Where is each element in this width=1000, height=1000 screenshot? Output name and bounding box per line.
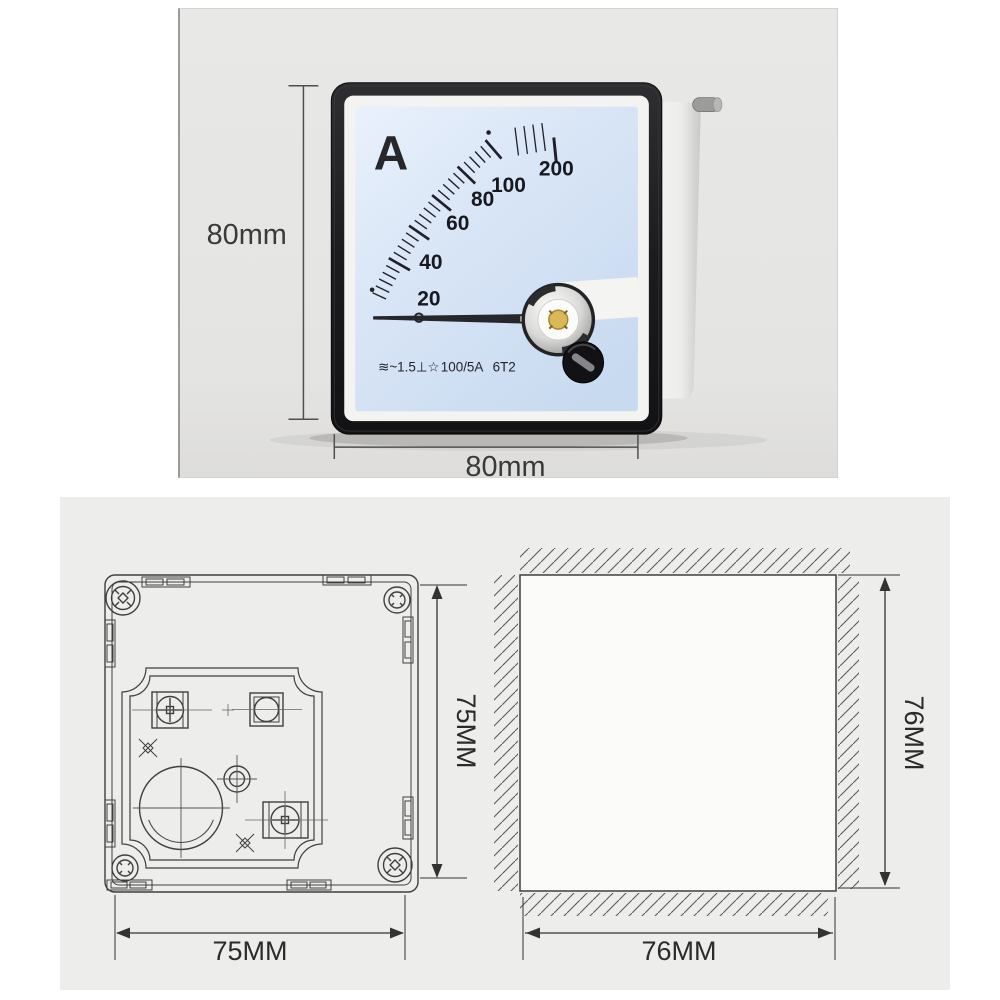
- panel-cutout-drawing: [494, 548, 859, 916]
- cutout-opening: [520, 575, 836, 891]
- photo-height-label: 80mm: [207, 219, 287, 251]
- corner-screw-tl: [106, 581, 140, 615]
- dimension-drawings-panel: 75MM 75MM: [60, 497, 950, 990]
- rear-inner-case: [112, 582, 411, 885]
- cutout-width-label: 76MM: [641, 936, 716, 966]
- scale-label-100: 100: [491, 174, 526, 197]
- zero-adjust-knob: [563, 342, 604, 383]
- datum-mark-1: [139, 739, 157, 757]
- hatch-left: [494, 575, 518, 891]
- photo-height-dimension: [289, 86, 319, 419]
- datum-mark-2: [236, 834, 254, 852]
- drawings: 75MM 75MM: [60, 497, 950, 990]
- movement-circle: [133, 758, 230, 858]
- corner-screw-tr: [384, 587, 410, 613]
- scale-label-200: 200: [539, 157, 574, 180]
- hatch-bottom: [520, 893, 828, 916]
- hatch-top: [520, 548, 850, 573]
- meter-unit-label: A: [374, 127, 409, 180]
- terminal-block-3: [245, 791, 328, 849]
- scale-start-dot: [370, 287, 375, 292]
- terminal-block-1: [132, 692, 234, 728]
- dial-marking-ratio: 100/5A: [441, 359, 484, 374]
- corner-screw-br: [378, 848, 412, 882]
- cutout-height-label: 76MM: [899, 695, 929, 770]
- rear-view-drawing: [105, 575, 418, 892]
- scale-label-40: 40: [419, 251, 442, 274]
- scale-label-20: 20: [417, 288, 440, 311]
- scale-end-dot: [486, 130, 491, 135]
- adjuster-target: [217, 755, 257, 803]
- terminal-screw: [693, 98, 722, 112]
- rear-width-label: 75MM: [212, 936, 287, 966]
- hatch-right: [838, 577, 859, 889]
- dial-marking-model: 6T2: [493, 359, 516, 374]
- scale-label-60: 60: [446, 212, 469, 235]
- dial-marking: ≋~1.5⊥☆ 100/5A 6T2: [378, 359, 516, 374]
- page: A 20 40 60 80 100 200 ≋~1.5⊥☆: [0, 0, 1000, 1000]
- corner-screw-bl: [112, 855, 138, 881]
- mounting-clips: [105, 575, 413, 890]
- dial-marking-symbols: ≋~1.5⊥☆: [378, 359, 439, 374]
- rear-outer-case: [105, 575, 418, 892]
- rear-height-label: 75MM: [451, 693, 481, 768]
- terminal-block-2: [232, 693, 302, 726]
- product-photo-panel: A 20 40 60 80 100 200 ≋~1.5⊥☆: [178, 8, 838, 478]
- photo-width-label: 80mm: [465, 451, 545, 477]
- ammeter-photo: A 20 40 60 80 100 200 ≋~1.5⊥☆: [180, 9, 837, 477]
